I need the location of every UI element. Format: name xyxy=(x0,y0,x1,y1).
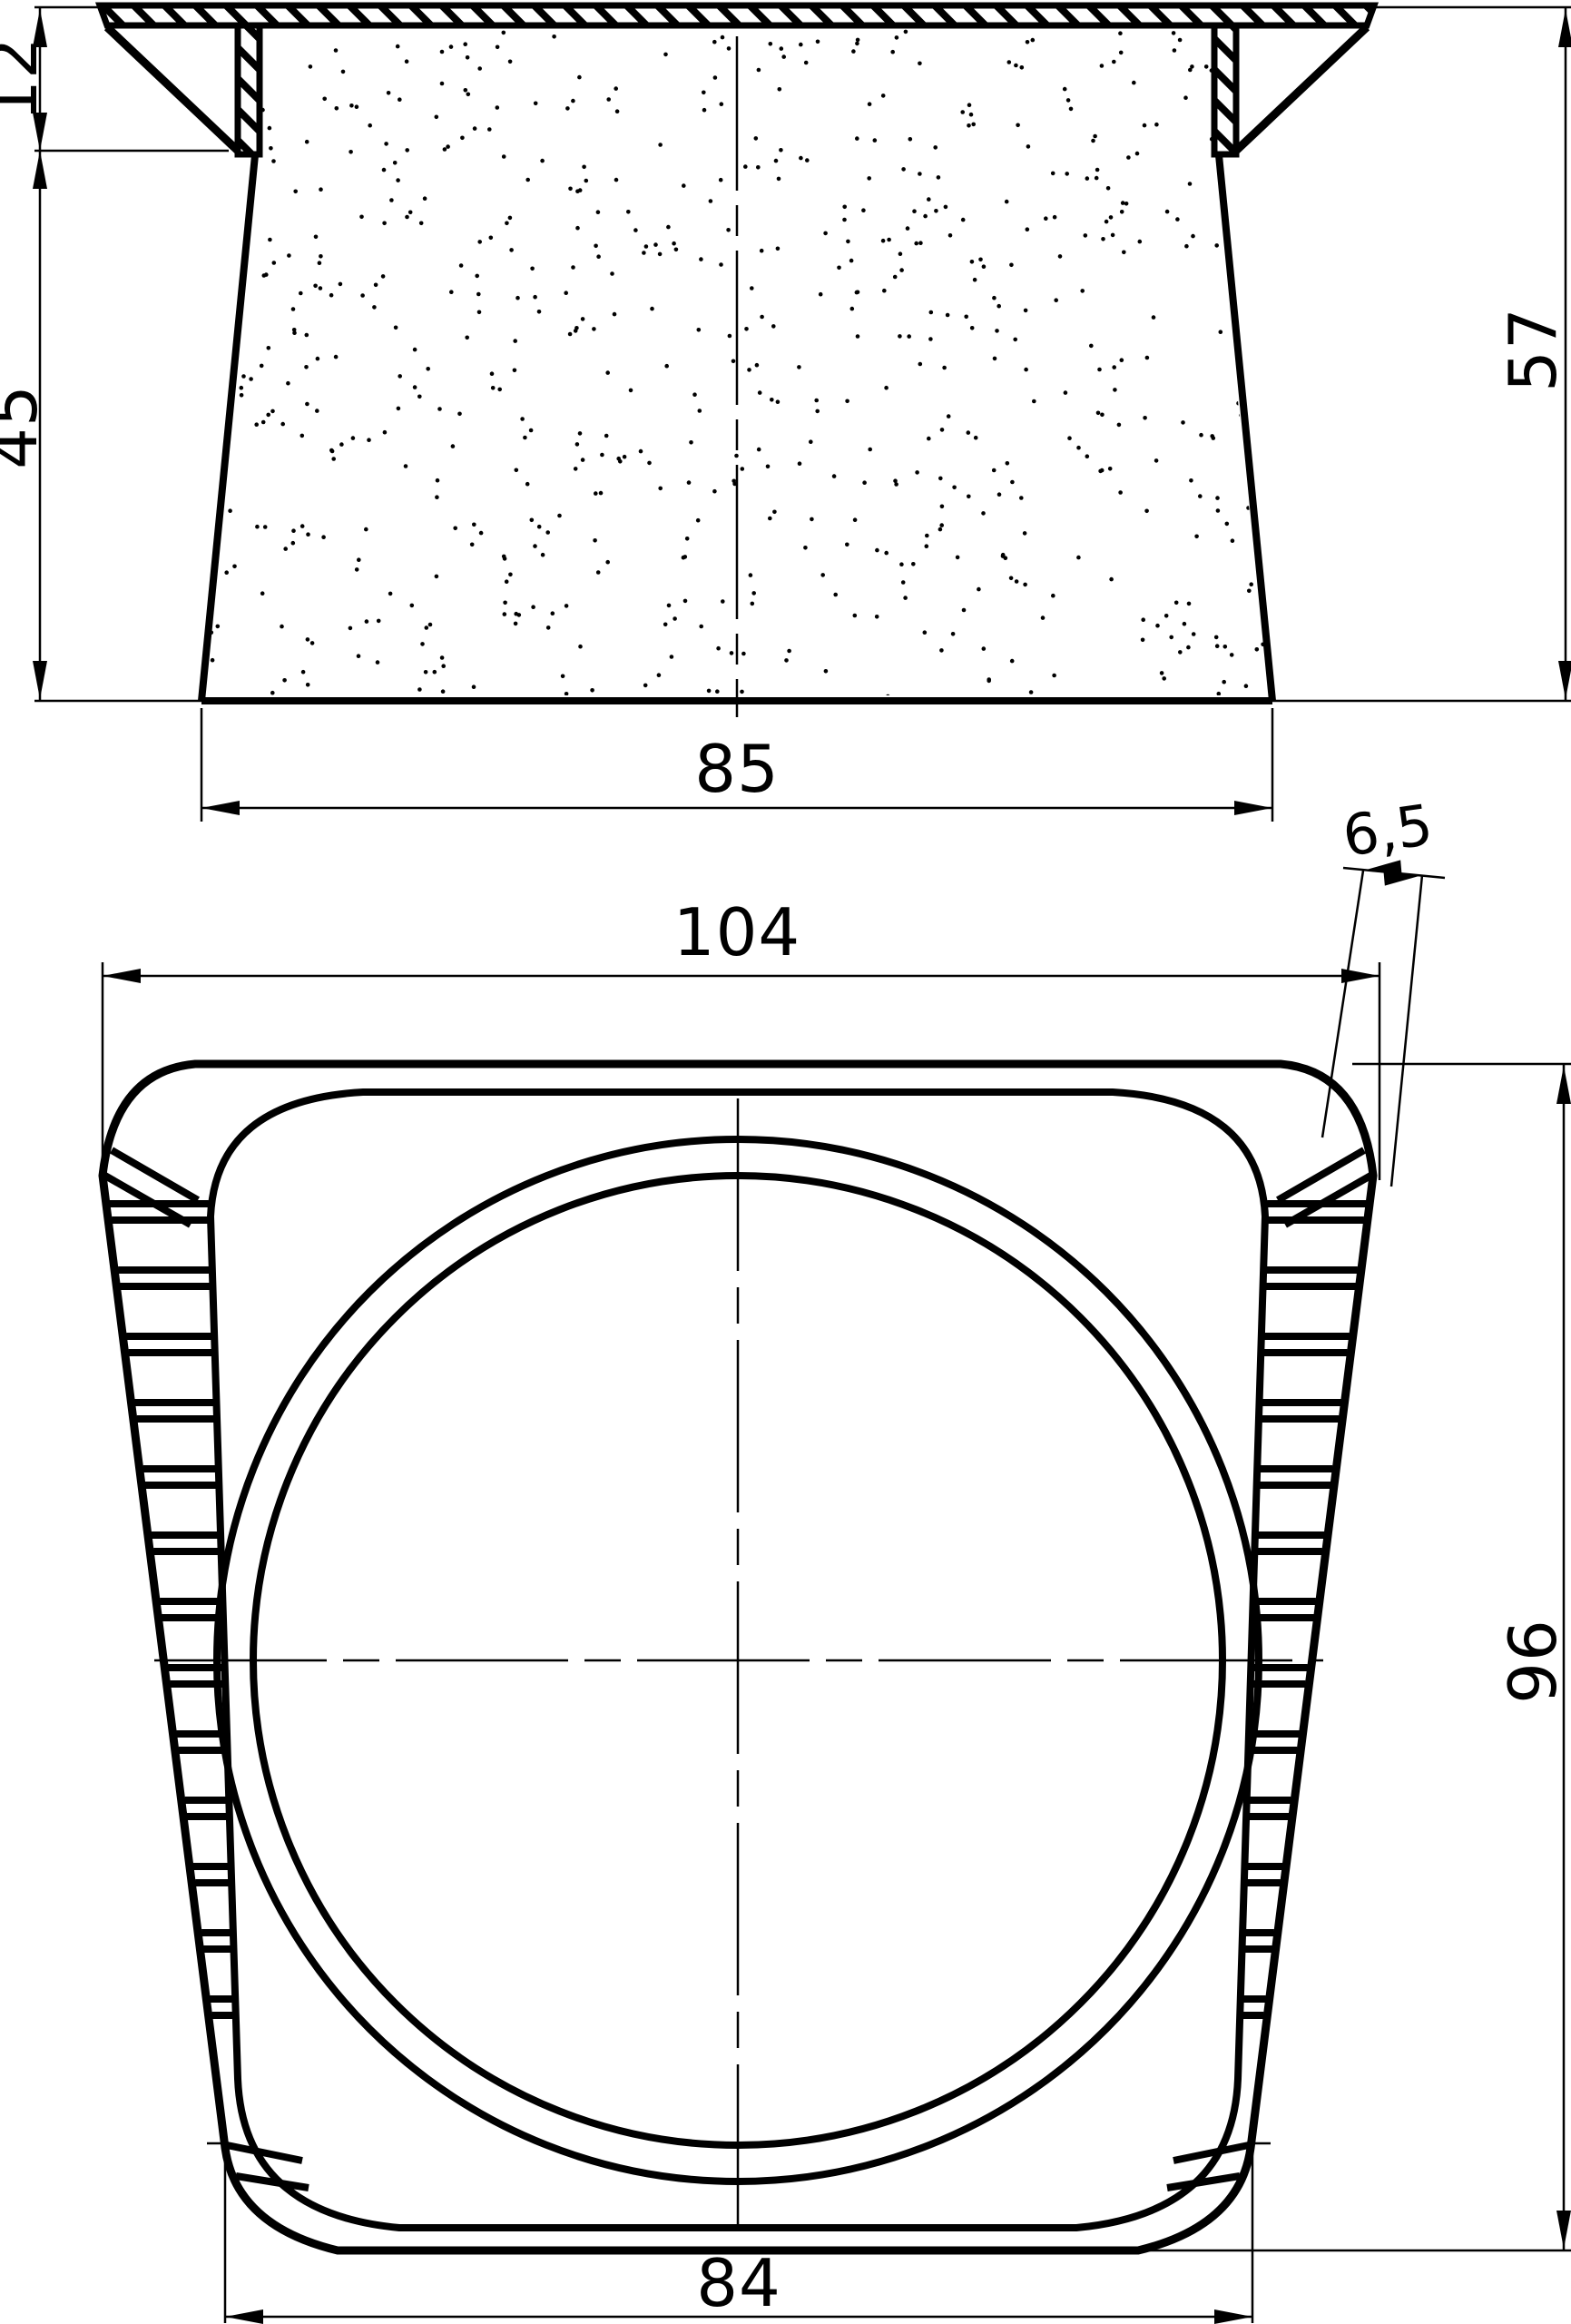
dim-plan-height: 96 xyxy=(1495,1619,1571,1704)
technical-drawing-canvas: 12 45 57 85 104 6,5 96 84 xyxy=(0,0,1571,2324)
technical-drawing-page: 12 45 57 85 104 6,5 96 84 xyxy=(0,0,1571,2324)
dim-total-height: 57 xyxy=(1495,307,1571,392)
dim-flange-height: 12 xyxy=(0,36,52,122)
dim-body-height: 45 xyxy=(0,384,52,469)
dim-plan-top-width: 104 xyxy=(673,894,800,970)
cap-left-wall-hatched xyxy=(238,25,260,154)
dim-corner-wall-thickness: 6,5 xyxy=(1339,792,1437,870)
cap-top-plate-hatched xyxy=(100,5,1374,25)
cap-right-wall-hatched xyxy=(1214,25,1236,154)
dim-section-bottom-width: 85 xyxy=(694,731,780,807)
dim-plan-bottom-width: 84 xyxy=(696,2245,781,2321)
